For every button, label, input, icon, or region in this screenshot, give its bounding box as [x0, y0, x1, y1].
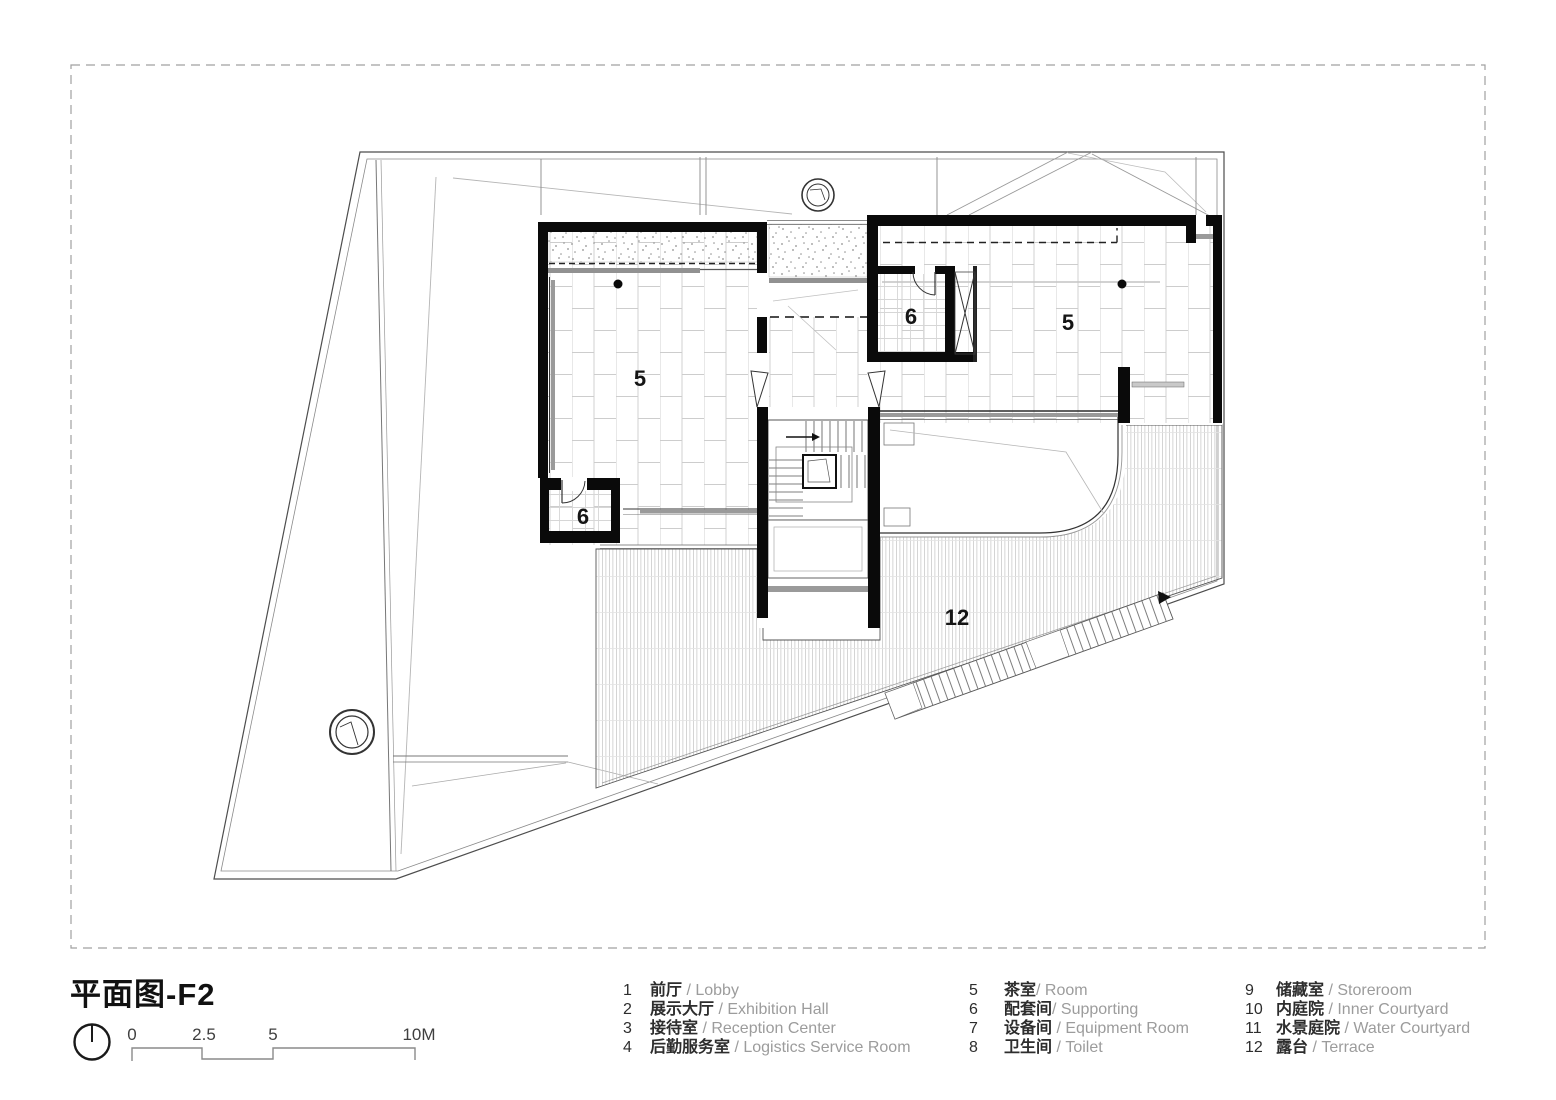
legend-item-room: 茶室/ Room — [1003, 980, 1088, 999]
scale-tick-0: 0 — [127, 1025, 136, 1044]
scale-tick-5: 5 — [268, 1025, 277, 1044]
room-label-5-left: 5 — [634, 366, 646, 391]
column-dot — [1118, 280, 1127, 289]
scale-tick-10m: 10M — [402, 1025, 435, 1044]
legend-num: 10 — [1245, 1001, 1263, 1018]
legend-item-lobby: 前厅 / Lobby — [650, 980, 739, 999]
legend-item-water-courtyard: 水景庭院 / Water Courtyard — [1276, 1018, 1470, 1037]
legend-num: 8 — [969, 1039, 978, 1056]
legend-item-inner-courtyard: 内庭院 / Inner Courtyard — [1276, 999, 1449, 1018]
legend-item-exhibition-hall: 展示大厅 / Exhibition Hall — [650, 999, 829, 1018]
room-label-6-left: 6 — [577, 504, 589, 529]
legend-num: 3 — [623, 1020, 632, 1037]
legend-num: 11 — [1245, 1020, 1262, 1037]
column-dot — [614, 280, 623, 289]
legend-item-toilet: 卫生间 / Toilet — [1004, 1037, 1103, 1056]
legend-item-reception-center: 接待室 / Reception Center — [650, 1018, 837, 1037]
legend-num: 1 — [623, 982, 632, 999]
room-label-12-terrace: 12 — [945, 605, 969, 630]
legend-num: 4 — [623, 1039, 632, 1056]
legend-num: 12 — [1245, 1039, 1263, 1056]
page-title: 平面图-F2 — [70, 977, 216, 1012]
legend-item-logistics-service-room: 后勤服务室 / Logistics Service Room — [650, 1037, 911, 1056]
room-label-5-right: 5 — [1062, 310, 1074, 335]
drawing-sheet: 5 6 6 5 12 平面图-F2 0 2.5 5 10M 1 前厅 / Lob… — [0, 0, 1556, 1100]
legend-num: 7 — [969, 1020, 978, 1037]
legend-item-equipment-room: 设备间 / Equipment Room — [1004, 1018, 1189, 1037]
main-stair — [768, 420, 868, 592]
legend-item-terrace: 露台 / Terrace — [1276, 1037, 1375, 1056]
legend-item-supporting: 配套间/ Supporting — [1004, 999, 1138, 1018]
floor-plan-svg: 5 6 6 5 12 平面图-F2 0 2.5 5 10M 1 前厅 / Lob… — [0, 0, 1556, 1100]
legend-num: 6 — [969, 1001, 978, 1018]
legend-num: 2 — [623, 1001, 632, 1018]
legend-num: 5 — [969, 982, 978, 999]
legend-item-storeroom: 储藏室 / Storeroom — [1275, 980, 1412, 999]
room-label-6-center: 6 — [905, 304, 917, 329]
legend-num: 9 — [1245, 982, 1254, 999]
scale-tick-2-5: 2.5 — [192, 1025, 216, 1044]
